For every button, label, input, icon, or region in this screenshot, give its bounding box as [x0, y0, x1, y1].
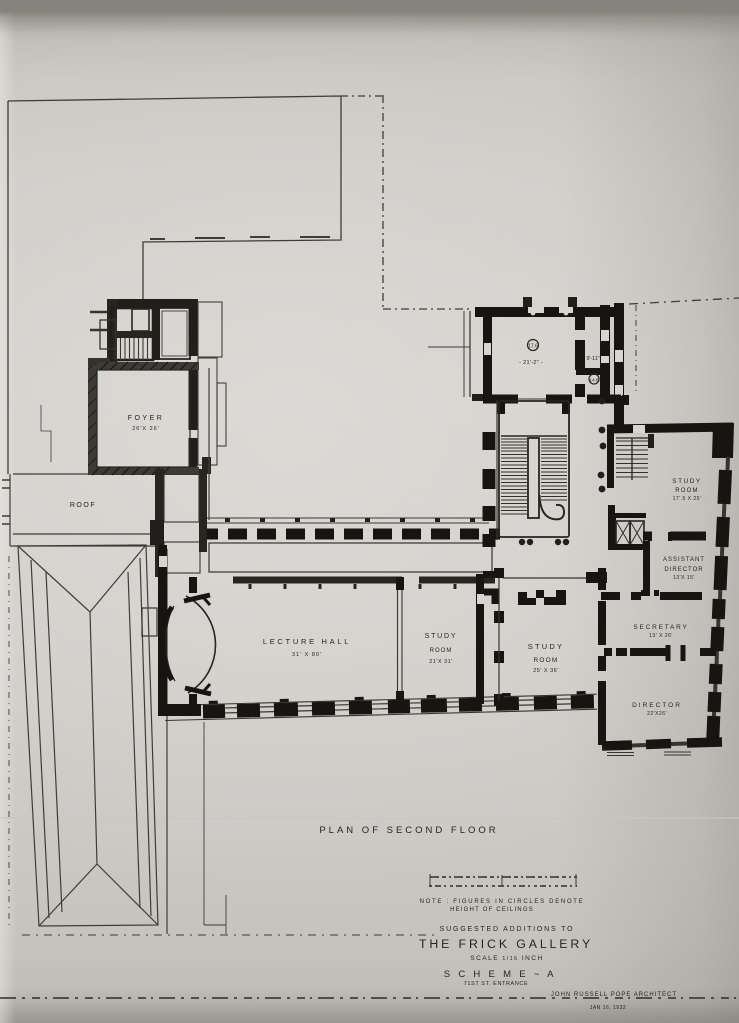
svg-text:JAN 16, 1932: JAN 16, 1932 — [590, 1005, 626, 1011]
svg-text:JOHN RUSSELL POPE ARCHITECT: JOHN RUSSELL POPE ARCHITECT — [551, 992, 677, 998]
svg-text:ROOM: ROOM — [533, 657, 558, 664]
svg-text:25' X 36': 25' X 36' — [533, 668, 559, 674]
svg-text:ROOM: ROOM — [675, 488, 698, 494]
svg-text:STUDY: STUDY — [425, 633, 458, 640]
svg-text:SUGGESTED ADDITIONS TO: SUGGESTED ADDITIONS TO — [440, 926, 575, 933]
svg-text:STUDY: STUDY — [528, 642, 564, 651]
svg-text:THE FRICK GALLERY: THE FRICK GALLERY — [419, 937, 593, 951]
svg-text:26'X 26': 26'X 26' — [132, 426, 160, 432]
svg-text:HEIGHT OF CEILINGS: HEIGHT OF CEILINGS — [450, 907, 534, 913]
svg-text:9'-11": 9'-11" — [586, 356, 599, 362]
svg-text:PLAN OF SECOND FLOOR: PLAN OF SECOND FLOOR — [319, 825, 498, 836]
svg-text:17'.5 X 25': 17'.5 X 25' — [673, 496, 702, 502]
svg-text:31' X 80': 31' X 80' — [292, 652, 322, 658]
svg-text:LECTURE HALL: LECTURE HALL — [263, 637, 351, 646]
svg-text:13' X 26': 13' X 26' — [649, 633, 673, 639]
svg-text:21'X 31': 21'X 31' — [429, 659, 453, 665]
svg-text:SECRETARY: SECRETARY — [633, 624, 688, 631]
svg-text:17.6: 17.6 — [528, 344, 538, 350]
svg-text:DIRECTOR: DIRECTOR — [664, 567, 703, 573]
svg-text:ASSISTANT: ASSISTANT — [663, 557, 705, 563]
svg-text:22'X26': 22'X26' — [647, 711, 667, 717]
svg-text:71ST ST. ENTRANCE: 71ST ST. ENTRANCE — [464, 981, 529, 987]
svg-text:DIRECTOR: DIRECTOR — [632, 702, 682, 709]
svg-text:14.6: 14.6 — [590, 378, 599, 383]
svg-text:ROOM: ROOM — [430, 648, 453, 654]
svg-text:S C H E M E ~ A: S C H E M E ~ A — [444, 969, 556, 980]
svg-text:13'X 15': 13'X 15' — [673, 575, 695, 581]
svg-text:FOYER: FOYER — [128, 415, 165, 422]
svg-text:ROOF: ROOF — [70, 502, 96, 509]
svg-text:NOTE : FIGURES IN CIRCLES D: NOTE : FIGURES IN CIRCLES DENOTE — [420, 899, 585, 905]
svg-text:STUDY: STUDY — [672, 478, 702, 485]
svg-text:SCALE 1/16 INCH: SCALE 1/16 INCH — [470, 955, 543, 962]
svg-text:- 21'-2" -: - 21'-2" - — [519, 360, 543, 366]
